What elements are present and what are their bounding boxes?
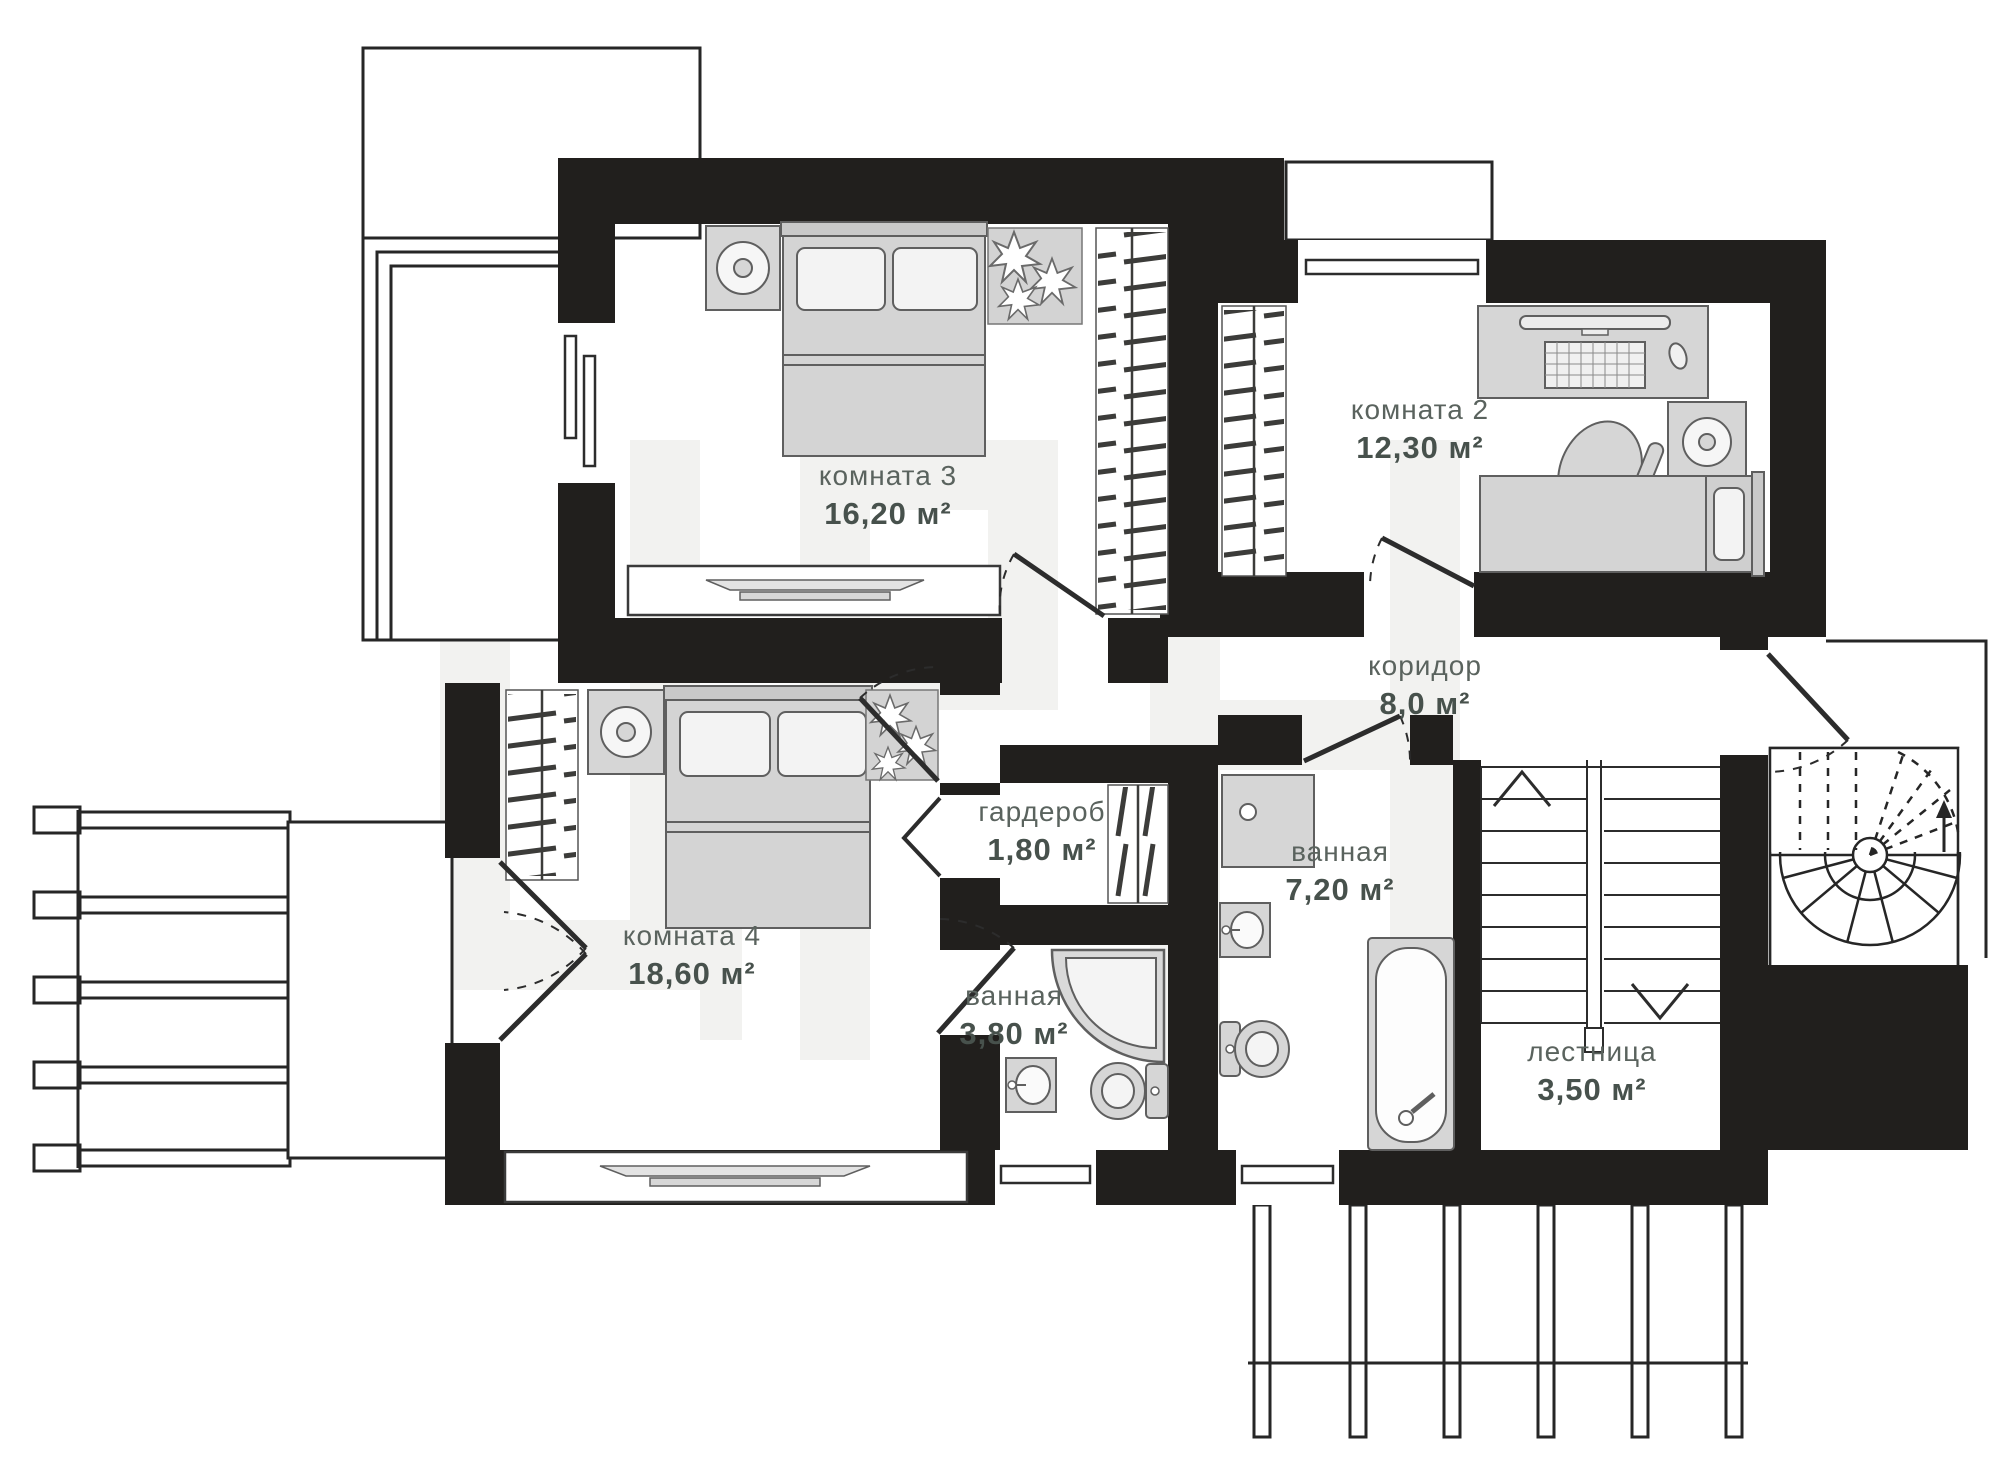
room-label-bathroom-small: ванная 3,80 м² <box>959 978 1068 1054</box>
room-name: комната 2 <box>1351 392 1489 428</box>
room-name: ванная <box>1285 834 1394 870</box>
nightstand <box>706 226 780 310</box>
wardrobe-rail <box>1222 306 1286 576</box>
arrow-up-icon <box>1494 772 1550 806</box>
room-label-room3: комната 3 16,20 м² <box>819 458 957 534</box>
nightstand <box>588 690 664 774</box>
bathtub <box>1368 938 1454 1150</box>
window <box>1298 240 1486 303</box>
window-sill-table <box>505 1152 967 1202</box>
shower <box>1052 950 1164 1062</box>
room-name: коридор <box>1368 648 1482 684</box>
desk <box>1478 306 1708 398</box>
pillow <box>680 712 770 776</box>
sink <box>1006 1058 1056 1112</box>
room-label-room2: комната 2 12,30 м² <box>1351 392 1489 468</box>
room-label-room4: комната 4 18,60 м² <box>623 918 761 994</box>
staircase <box>1481 760 1720 1052</box>
room-label-corridor: коридор 8,0 м² <box>1368 648 1482 724</box>
window <box>558 323 615 483</box>
room-label-wardrobe: гардероб 1,80 м² <box>978 794 1105 870</box>
room-area: 3,80 м² <box>959 1014 1068 1054</box>
double-bed <box>781 222 987 456</box>
room-area: 1,80 м² <box>978 830 1105 870</box>
toilet <box>1091 1063 1168 1119</box>
monitor-icon <box>1520 316 1670 329</box>
room-area: 8,0 м² <box>1368 684 1482 724</box>
room-area: 16,20 м² <box>819 494 957 534</box>
room-area: 7,20 м² <box>1285 870 1394 910</box>
double-bed <box>664 686 872 928</box>
door-balcony-french <box>500 862 586 1040</box>
sink <box>1220 903 1270 957</box>
single-bed <box>1480 472 1764 576</box>
pillow <box>893 248 977 310</box>
room-area: 18,60 м² <box>623 954 761 994</box>
room-name: комната 3 <box>819 458 957 494</box>
pillow <box>1714 488 1744 560</box>
door-room3 <box>1000 554 1104 616</box>
door-to-spiral-stairs <box>1768 654 1848 772</box>
room-label-bathroom-large: ванная 7,20 м² <box>1285 834 1394 910</box>
nightstand <box>1668 402 1746 482</box>
room-name: лестница <box>1527 1034 1656 1070</box>
room-label-stairs: лестница 3,50 м² <box>1527 1034 1656 1110</box>
door-wardrobe-bifold <box>904 798 940 876</box>
interior-layer <box>0 0 2000 1477</box>
toilet <box>1220 1021 1289 1077</box>
wardrobe-rail <box>1096 228 1168 614</box>
room-name: гардероб <box>978 794 1105 830</box>
window <box>1236 1150 1339 1205</box>
room-name: комната 4 <box>623 918 761 954</box>
pillow <box>797 248 885 310</box>
room-area: 3,50 м² <box>1527 1070 1656 1110</box>
room-name: ванная <box>959 978 1068 1014</box>
wardrobe-rail <box>1108 785 1168 903</box>
window-sill-table <box>628 566 1000 615</box>
keyboard-icon <box>1545 342 1645 388</box>
room-area: 12,30 м² <box>1351 428 1489 468</box>
door-room2 <box>1370 538 1474 586</box>
pillow <box>778 712 866 776</box>
wardrobe-rail <box>506 690 578 880</box>
window <box>995 1150 1096 1205</box>
floor-plan: комната 3 16,20 м² комната 2 12,30 м² ко… <box>0 0 2000 1477</box>
arrow-down-icon <box>1632 984 1688 1018</box>
plant <box>988 228 1082 324</box>
